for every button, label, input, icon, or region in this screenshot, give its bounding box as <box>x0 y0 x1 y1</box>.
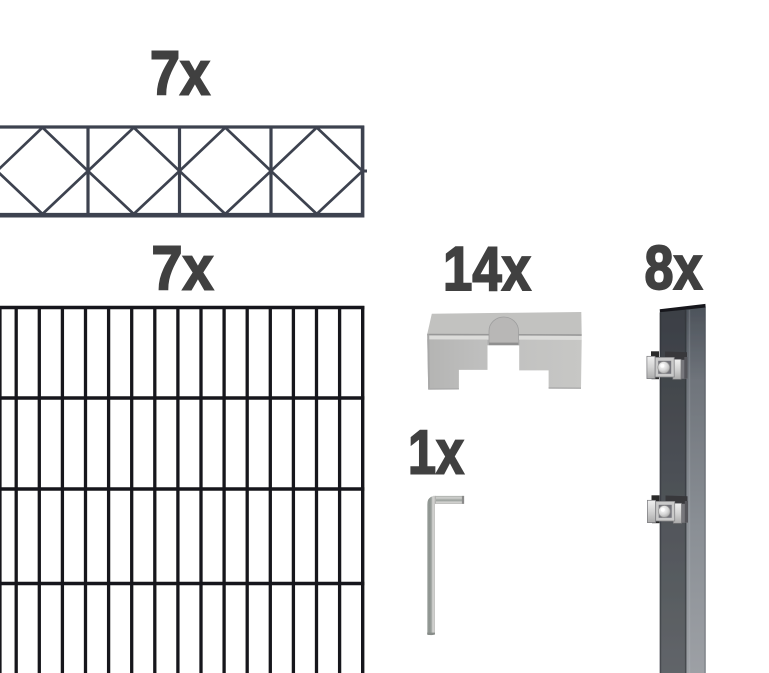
svg-text:1x: 1x <box>408 419 464 488</box>
svg-text:14x: 14x <box>443 235 531 304</box>
svg-text:7x: 7x <box>150 40 210 109</box>
svg-text:8x: 8x <box>645 234 703 303</box>
svg-text:7x: 7x <box>152 235 214 304</box>
